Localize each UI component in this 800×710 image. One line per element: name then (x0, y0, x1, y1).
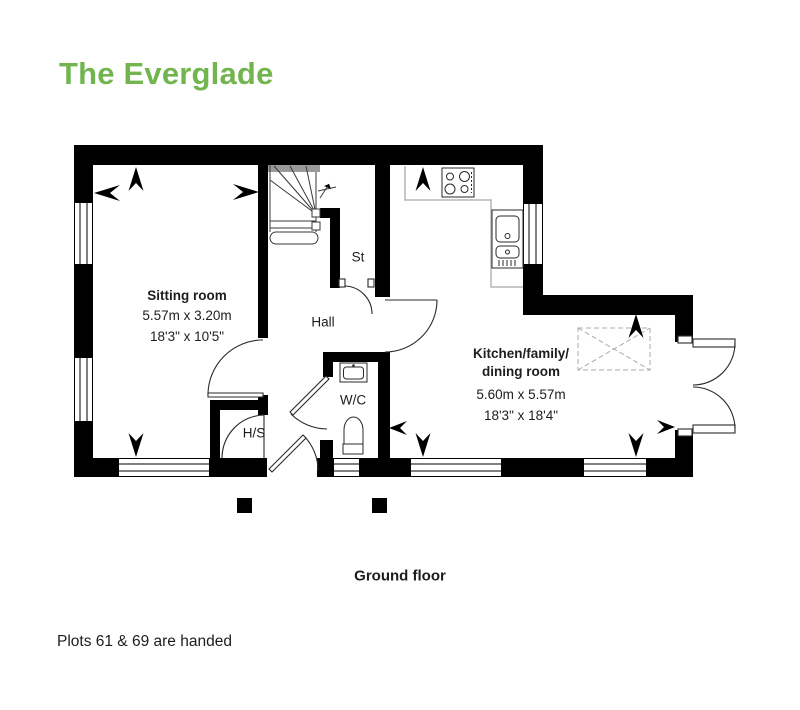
window-sitting-bottom (119, 459, 210, 477)
window-kitchen-right (524, 204, 543, 265)
stair-direction-arrow (318, 184, 336, 198)
kitchen-label: Kitchen/family/ dining room 5.60m x 5.57… (473, 345, 569, 426)
arrow-left-dining (389, 421, 407, 435)
window-dining-bottom-right (584, 459, 647, 477)
basin (340, 363, 367, 382)
wc-door (290, 376, 329, 429)
store-label: St (352, 250, 365, 265)
kitchen-name-line1: Kitchen/family/ (473, 345, 569, 363)
arrow-up-kitchen (416, 167, 431, 191)
arrow-left-sitting (94, 185, 120, 201)
sitting-room-label: Sitting room 5.57m x 3.20m 18'3" x 10'5" (142, 287, 231, 347)
arrow-up-sitting (129, 167, 144, 191)
floor-plan-drawing (0, 0, 800, 710)
floor-plan-page: The Everglade (0, 0, 800, 710)
window-wc-bottom (334, 459, 360, 477)
front-door (269, 435, 318, 472)
kitchen-door (385, 300, 437, 352)
sitting-room-door (208, 340, 263, 397)
window-left-upper (75, 203, 93, 265)
arrow-right-dining (657, 420, 675, 434)
interior-walls (210, 165, 390, 458)
arrow-right-sitting (233, 184, 259, 200)
kitchen-fixtures (405, 166, 523, 287)
arrow-up-dining (629, 314, 644, 338)
handed-note: Plots 61 & 69 are handed (57, 633, 232, 651)
sitting-room-imperial: 18'3" x 10'5" (142, 326, 231, 347)
wc-fixtures (340, 363, 367, 454)
window-left-lower (75, 358, 93, 422)
sitting-room-metric: 5.57m x 3.20m (142, 305, 231, 326)
porch-posts (237, 498, 387, 513)
store-door (339, 279, 374, 314)
rooflight (578, 328, 650, 370)
arrow-down-sitting (129, 433, 144, 457)
wc-label: W/C (340, 393, 366, 408)
stairs (268, 165, 336, 244)
hob (442, 168, 474, 197)
sink (492, 210, 523, 268)
sitting-room-name: Sitting room (142, 287, 231, 305)
hall-label: Hall (311, 315, 334, 330)
window-dining-bottom-left (411, 459, 502, 477)
arrow-down-dining-left (416, 433, 431, 457)
kitchen-name-line2: dining room (473, 363, 569, 381)
hs-label: H/S (243, 426, 266, 441)
floor-caption: Ground floor (354, 568, 446, 585)
arrow-down-dining-right (629, 433, 644, 457)
kitchen-imperial: 18'3" x 18'4" (473, 405, 569, 426)
kitchen-metric: 5.60m x 5.57m (473, 384, 569, 405)
french-doors (678, 336, 735, 436)
toilet (343, 417, 363, 454)
